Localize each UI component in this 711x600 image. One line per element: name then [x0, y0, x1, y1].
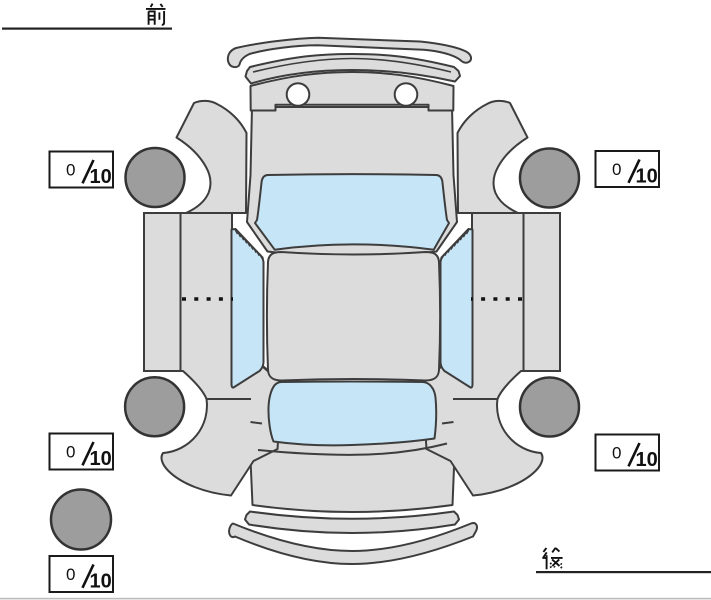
- svg-text:10: 10: [636, 166, 658, 188]
- svg-text:10: 10: [636, 449, 658, 471]
- svg-text:0: 0: [612, 160, 621, 179]
- svg-text:10: 10: [90, 166, 112, 188]
- svg-text:10: 10: [90, 571, 112, 593]
- svg-text:0: 0: [66, 565, 75, 584]
- svg-text:0: 0: [612, 444, 621, 463]
- svg-text:0: 0: [66, 443, 75, 462]
- svg-text:10: 10: [90, 448, 112, 470]
- svg-text:0: 0: [66, 161, 75, 180]
